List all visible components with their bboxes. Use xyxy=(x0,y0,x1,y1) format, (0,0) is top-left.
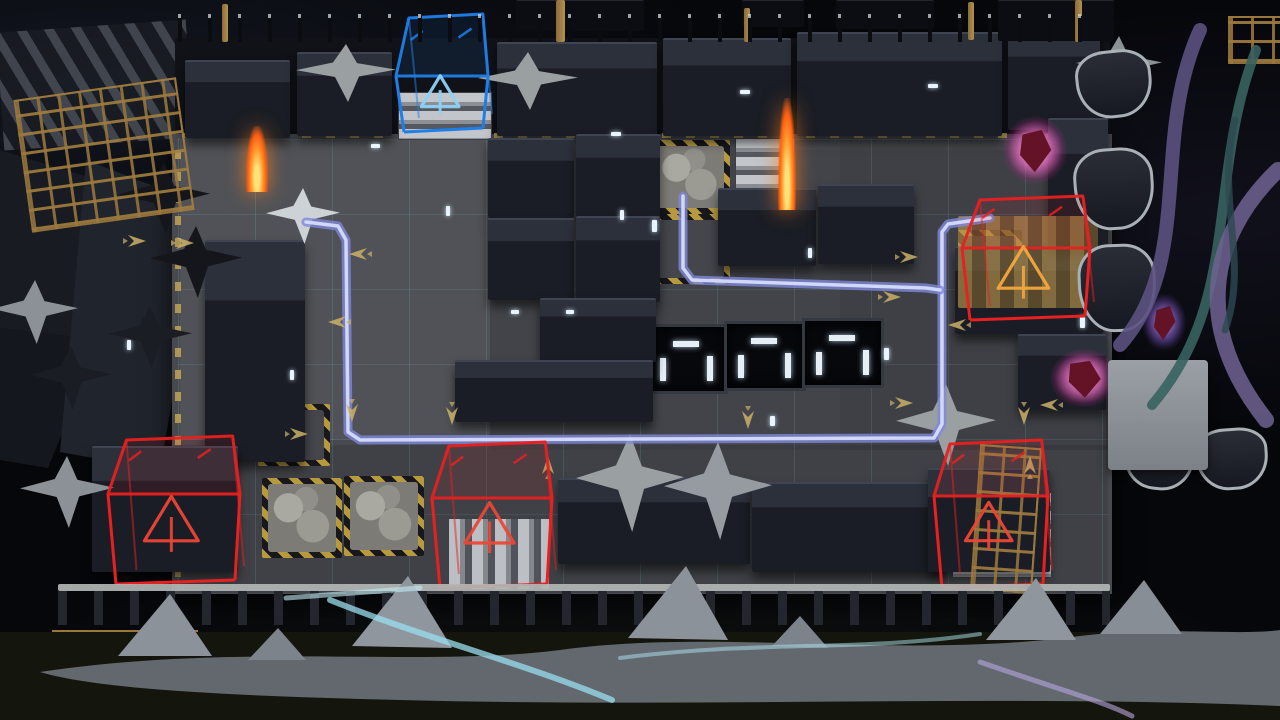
game-viewport xyxy=(0,0,1280,720)
serpent-and-tentacles xyxy=(0,0,1280,720)
